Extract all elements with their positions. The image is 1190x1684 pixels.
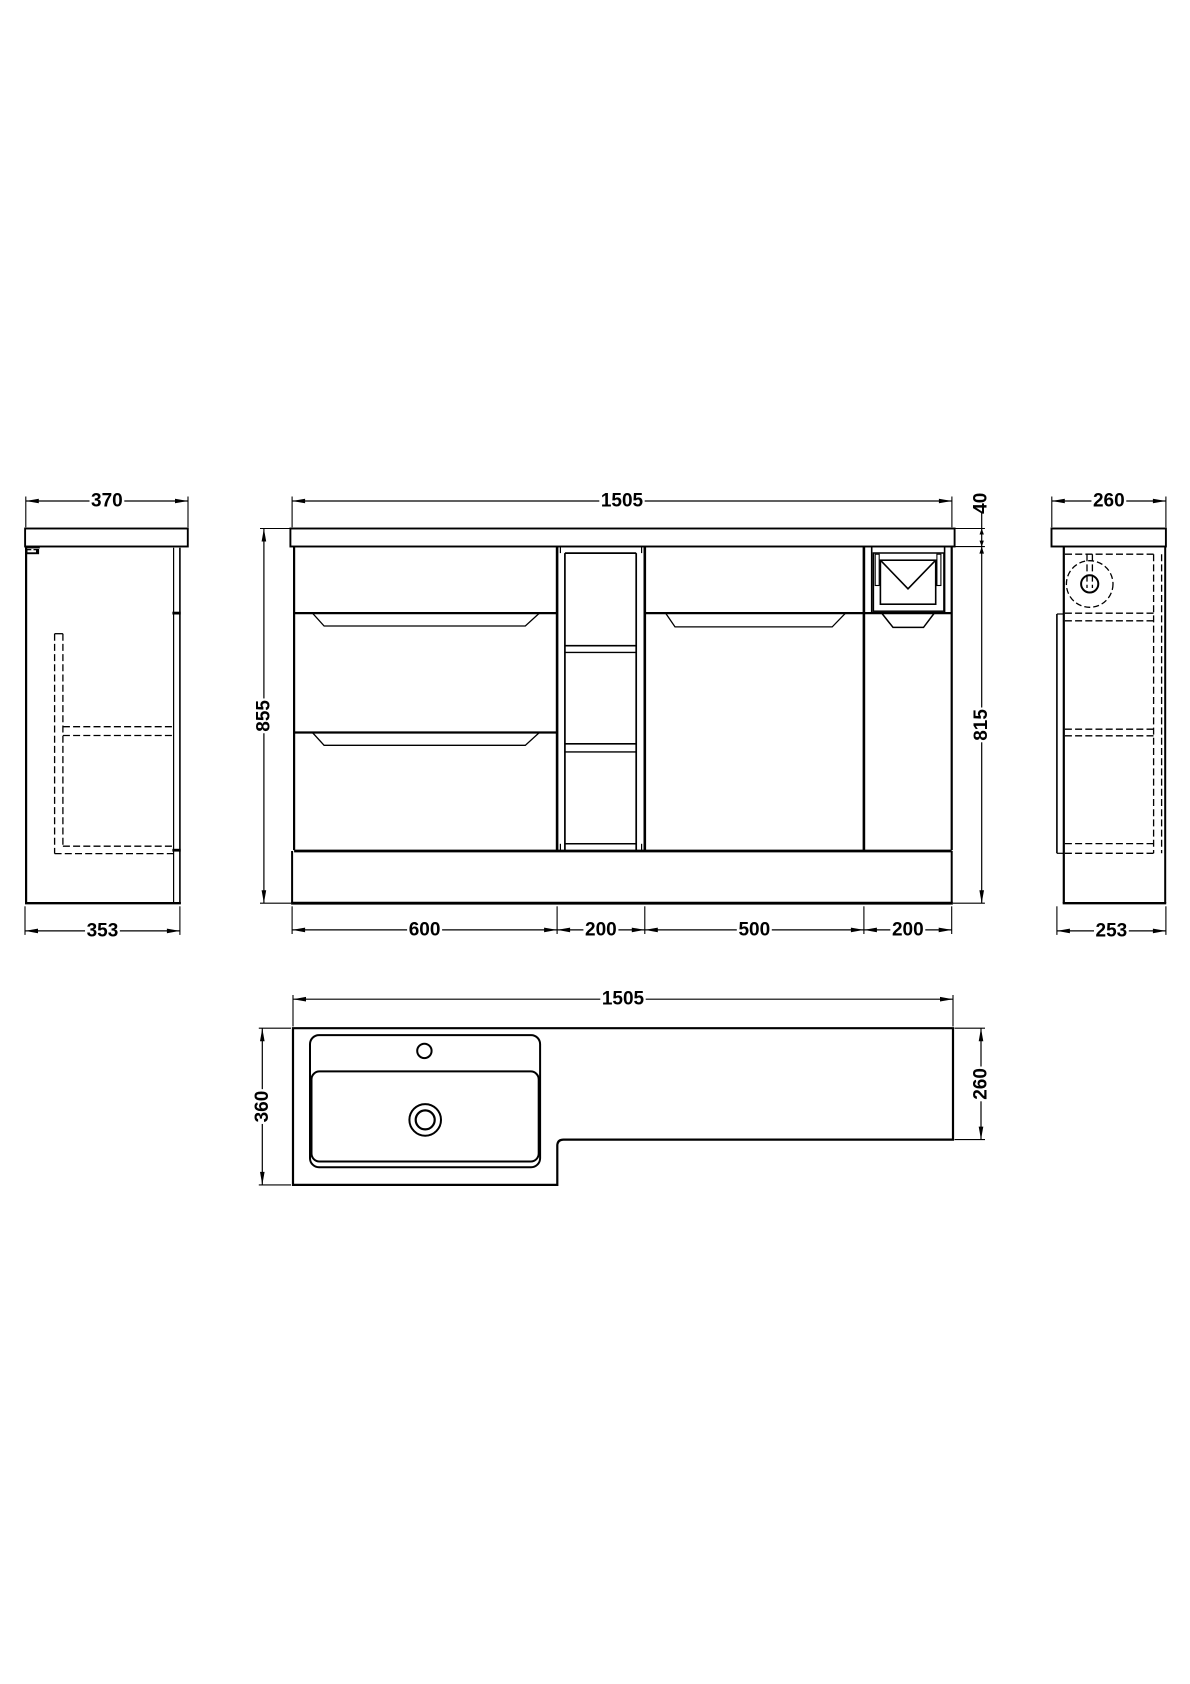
svg-text:815: 815 [971, 709, 992, 741]
svg-text:353: 353 [87, 920, 119, 941]
svg-text:1505: 1505 [602, 989, 645, 1010]
svg-text:40: 40 [971, 493, 992, 514]
svg-text:500: 500 [738, 919, 770, 940]
svg-text:253: 253 [1096, 920, 1128, 941]
svg-text:370: 370 [91, 491, 123, 512]
svg-text:600: 600 [409, 919, 441, 940]
svg-text:200: 200 [585, 919, 617, 940]
svg-text:1505: 1505 [601, 491, 644, 512]
svg-text:360: 360 [252, 1091, 273, 1123]
svg-text:200: 200 [892, 919, 924, 940]
svg-text:855: 855 [253, 700, 274, 732]
svg-text:260: 260 [971, 1068, 992, 1100]
svg-text:260: 260 [1093, 491, 1125, 512]
